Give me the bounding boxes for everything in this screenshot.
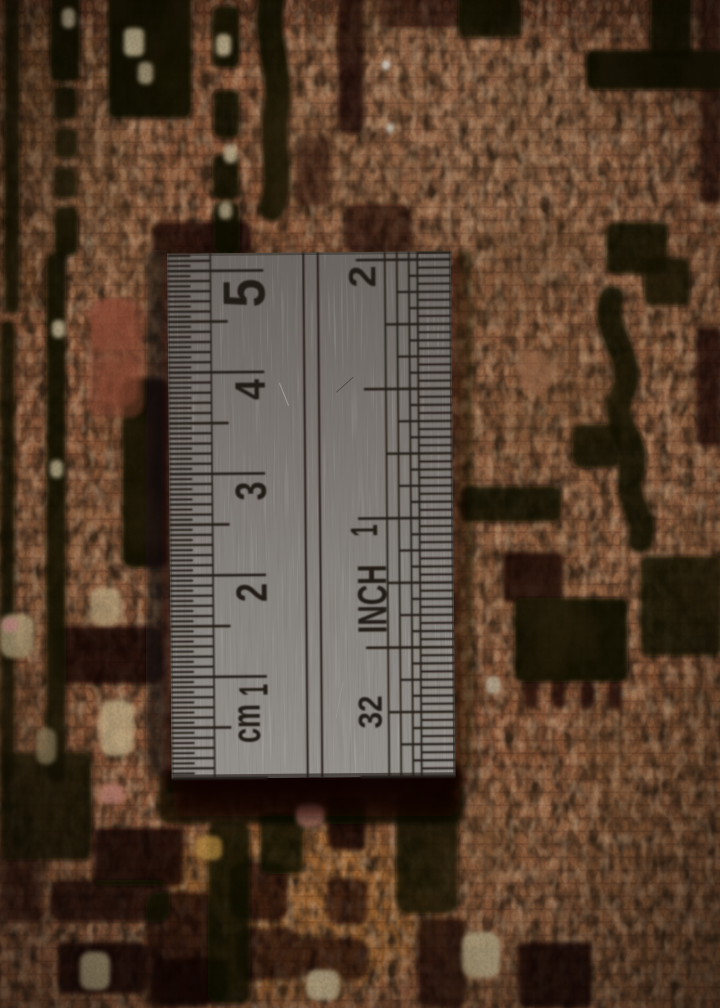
svg-text:5: 5 xyxy=(211,278,277,308)
svg-text:4: 4 xyxy=(227,379,275,400)
svg-text:3: 3 xyxy=(227,481,276,500)
svg-text:32: 32 xyxy=(352,695,389,728)
svg-text:1: 1 xyxy=(344,524,386,536)
svg-text:2: 2 xyxy=(342,265,384,287)
svg-text:cm: cm xyxy=(225,704,269,743)
svg-text:INCH: INCH xyxy=(349,564,396,633)
svg-text:2: 2 xyxy=(228,583,277,602)
svg-text:1: 1 xyxy=(230,684,276,696)
